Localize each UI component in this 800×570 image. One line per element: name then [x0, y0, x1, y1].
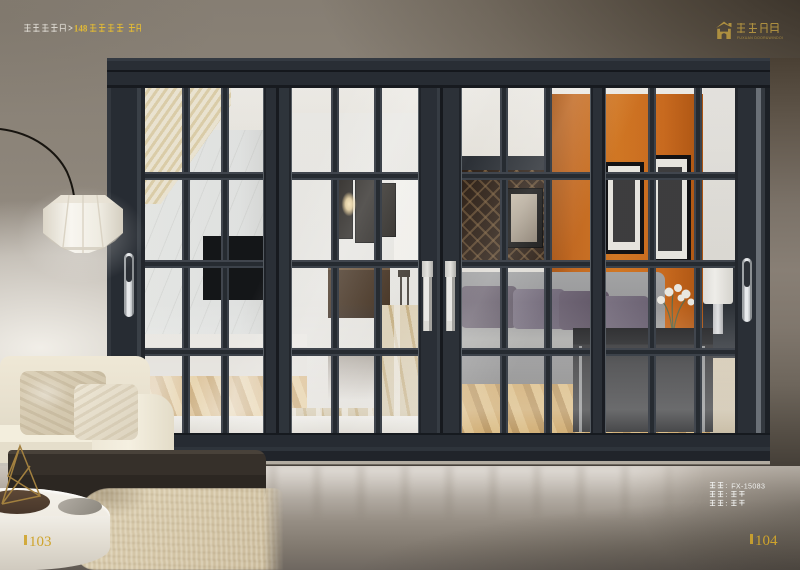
svg-text:FUXUAN DOOR&WINDOW: FUXUAN DOOR&WINDOW [737, 36, 783, 40]
svg-text:FX-15083: FX-15083 [731, 482, 765, 490]
svg-text:148: 148 [74, 24, 88, 34]
